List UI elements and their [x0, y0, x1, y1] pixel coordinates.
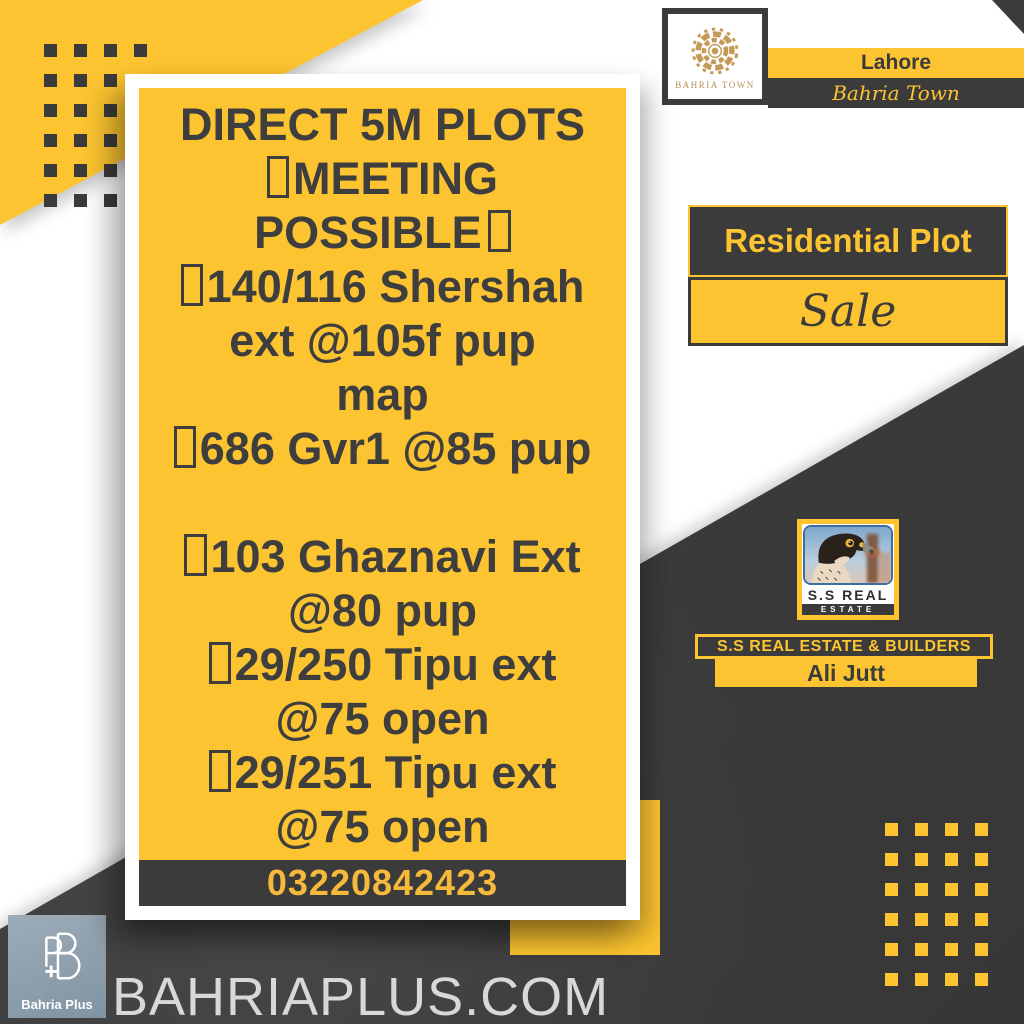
- missing-glyph-box: [267, 156, 290, 197]
- sale-label: Sale: [800, 286, 897, 337]
- dot: [975, 913, 988, 926]
- phone-bar: 03220842423: [139, 860, 626, 906]
- website-url: BAHRIAPLUS.COM: [112, 966, 609, 1024]
- missing-glyph-box: [209, 750, 232, 791]
- plot-line: 29/250 Tipu ext: [139, 638, 626, 692]
- phone-number: 03220842423: [267, 862, 498, 904]
- agent-name: Ali Jutt: [807, 660, 885, 687]
- sale-box: Sale: [688, 277, 1008, 346]
- plot-lines: DIRECT 5M PLOTSMEETINGPOSSIBLE140/116 Sh…: [139, 88, 626, 860]
- dot: [945, 943, 958, 956]
- bahria-plus-logo: Bahria Plus: [8, 915, 106, 1018]
- dot: [885, 973, 898, 986]
- town-bar: Bahria Town: [768, 78, 1024, 108]
- agency-banner-label: S.S REAL ESTATE & BUILDERS: [717, 638, 971, 656]
- plot-line: 29/251 Tipu ext: [139, 746, 626, 800]
- missing-glyph-box: [181, 264, 204, 305]
- dot: [885, 943, 898, 956]
- bahria-town-emblem-icon: [688, 24, 742, 78]
- dot: [915, 853, 928, 866]
- dot: [975, 883, 988, 896]
- dot: [945, 973, 958, 986]
- dot: [885, 823, 898, 836]
- dot: [915, 913, 928, 926]
- plot-line: @75 open: [139, 692, 626, 746]
- bahria-town-logo-caption: BAHRIA TOWN: [675, 80, 754, 90]
- ss-real-estate-logo-inner: S.S REAL ESTATE: [802, 524, 894, 615]
- dot: [975, 853, 988, 866]
- dot: [885, 883, 898, 896]
- dot: [915, 943, 928, 956]
- dot: [945, 823, 958, 836]
- missing-glyph-box: [488, 210, 511, 251]
- agent-name-bar: Ali Jutt: [715, 659, 977, 687]
- plot-line: 686 Gvr1 @85 pup: [139, 422, 626, 476]
- flyer-canvas: DIRECT 5M PLOTSMEETINGPOSSIBLE140/116 Sh…: [0, 0, 1024, 1024]
- plot-line: @80 pup: [139, 584, 626, 638]
- dot: [915, 823, 928, 836]
- dot: [915, 883, 928, 896]
- plot-line: 140/116 Shershah: [139, 260, 626, 314]
- dot: [975, 943, 988, 956]
- city-label: Lahore: [861, 51, 931, 75]
- bottom-right-dot-grid: [885, 823, 988, 986]
- listing-card-body: DIRECT 5M PLOTSMEETINGPOSSIBLE140/116 Sh…: [139, 88, 626, 906]
- dot: [885, 853, 898, 866]
- category-label: Residential Plot: [724, 222, 972, 260]
- city-bar: Lahore: [768, 48, 1024, 78]
- category-box: Residential Plot: [688, 205, 1008, 277]
- dot: [945, 853, 958, 866]
- missing-glyph-box: [184, 534, 207, 575]
- plot-line: MEETING: [139, 152, 626, 206]
- dot: [885, 913, 898, 926]
- plot-line: map: [139, 368, 626, 422]
- dot: [945, 883, 958, 896]
- agency-banner: S.S REAL ESTATE & BUILDERS: [695, 634, 993, 659]
- missing-glyph-box: [209, 642, 232, 683]
- town-label: Bahria Town: [832, 81, 960, 105]
- plot-line: [139, 476, 626, 530]
- bahria-plus-label: Bahria Plus: [21, 997, 93, 1018]
- bahria-plus-monogram-icon: [8, 915, 106, 997]
- plot-line: 103 Ghaznavi Ext: [139, 530, 626, 584]
- missing-glyph-box: [174, 426, 197, 467]
- plot-line: POSSIBLE: [139, 206, 626, 260]
- dot: [915, 973, 928, 986]
- falcon-icon: [805, 527, 891, 583]
- dot: [945, 913, 958, 926]
- dot: [975, 973, 988, 986]
- plot-line: ext @105f pup: [139, 314, 626, 368]
- falcon-photo: [803, 525, 893, 585]
- ss-real-estate-logo: S.S REAL ESTATE: [797, 519, 899, 620]
- plot-line: @75 open: [139, 800, 626, 854]
- ss-logo-line2: ESTATE: [802, 604, 894, 615]
- bahria-town-logo-box: BAHRIA TOWN: [662, 8, 768, 105]
- listing-card: DIRECT 5M PLOTSMEETINGPOSSIBLE140/116 Sh…: [125, 74, 640, 920]
- plot-line: DIRECT 5M PLOTS: [139, 98, 626, 152]
- ss-logo-line1: S.S REAL: [802, 586, 894, 604]
- dot: [975, 823, 988, 836]
